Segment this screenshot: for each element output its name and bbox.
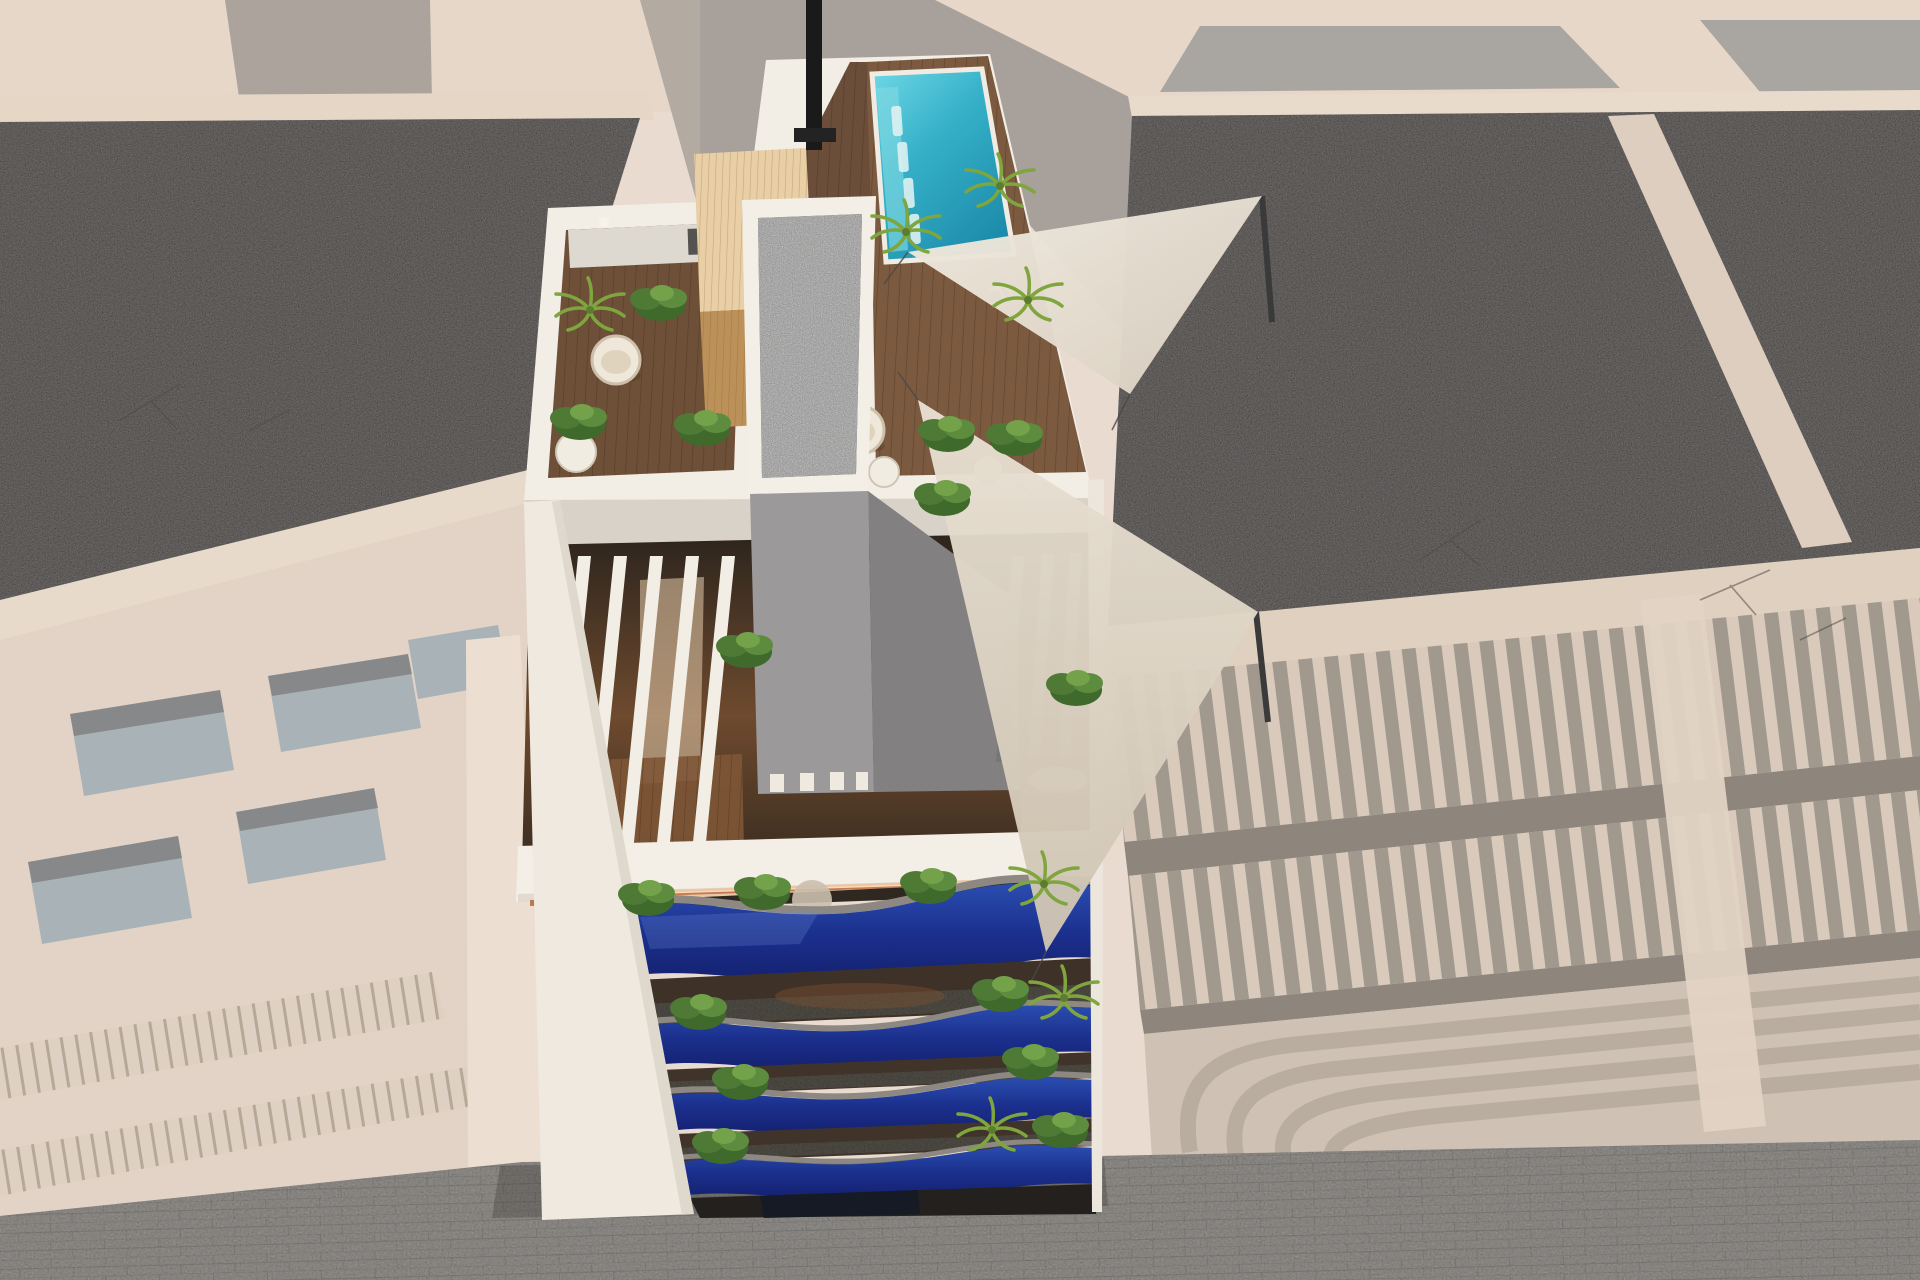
core-tooth [800,773,814,791]
side-table [869,457,899,487]
right-gravel-roof [1108,110,1920,628]
core-tooth [856,772,868,790]
pool-lounger [897,142,909,173]
core-tooth [770,774,784,792]
aerial-render [0,0,1920,1280]
render-canvas [0,0,1920,1280]
top-right-lower-roof-1 [1160,26,1620,92]
warm-light-glow [775,983,945,1009]
core-tooth [830,772,844,790]
counter-decor [599,217,609,227]
egg-chair [592,336,641,384]
core-gravel-top [758,214,862,478]
chimney [806,0,822,150]
pool-lounger [891,106,903,137]
top-left-lower-roof [225,0,432,104]
chimney-bracket [794,128,836,142]
